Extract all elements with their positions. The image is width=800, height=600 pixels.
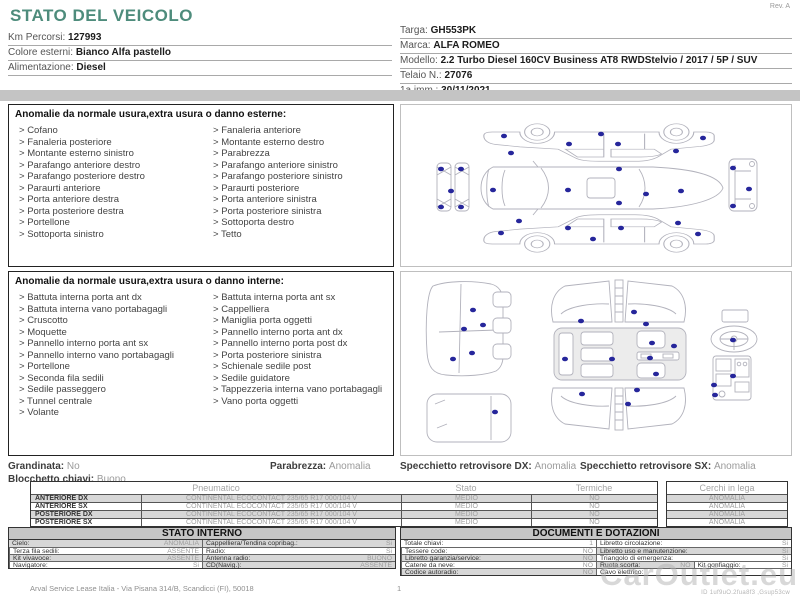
status-cell: Kit vivavoce: ASSENTE <box>9 554 202 561</box>
documents-equipment-title: DOCUMENTI E DOTAZIONI <box>401 528 791 540</box>
tire-termiche: NO <box>531 503 657 510</box>
tire-row: ANTERIORE DX CONTINENTAL ECOCONTACT 235/… <box>31 494 657 502</box>
anomaly-item: Tunnel centrale <box>19 396 189 408</box>
anomaly-item: Sottoporta sinistro <box>19 229 189 241</box>
status-cell: CD(Navig.): ASSENTE <box>202 561 395 568</box>
anomaly-item: Tetto <box>213 229 383 241</box>
document-cell-value: NO <box>583 569 593 576</box>
status-cell-label: Cappelliera/Tendina copribag.: <box>206 540 298 547</box>
status-cell-label: Cielo: <box>12 540 29 547</box>
status-cell-value: ASSENTE <box>360 562 392 569</box>
anomaly-item: Pannello interno vano portabagagli <box>19 350 189 362</box>
anomaly-item: Cofano <box>19 125 189 137</box>
info-row: Marca: ALFA ROMEO <box>400 39 792 54</box>
revision-label: Rev. A <box>770 3 790 10</box>
anomaly-item: Schienale sedile post <box>213 361 383 373</box>
status-cell-value: Si <box>193 562 199 569</box>
tire-description: CONTINENTAL ECOCONTACT 235/65 R17 000/10… <box>141 495 401 502</box>
anomaly-item: Parafango posteriore sinistro <box>213 171 383 183</box>
document-cell: Libretto circolazione: Si <box>596 540 791 547</box>
tire-stato: MEDIO <box>401 511 531 518</box>
anomaly-item: Parabrezza <box>213 148 383 160</box>
page-title: STATO DEL VEICOLO <box>10 6 193 26</box>
alloy-wheels-body: ANOMALIAANOMALIAANOMALIAANOMALIA <box>667 494 787 526</box>
tire-position: ANTERIORE DX <box>31 495 141 502</box>
status-parabrezza: Parabrezza: Anomalia <box>270 461 371 472</box>
status-cell: Cappelliera/Tendina copribag.: Si <box>202 540 395 547</box>
info-value: 27076 <box>444 70 472 81</box>
info-label: Targa: <box>400 25 431 36</box>
status-cell-label: CD(Navig.): <box>206 562 242 569</box>
document-cell: Totale chiavi: 1 <box>401 540 596 547</box>
info-label: Colore esterni: <box>8 47 76 58</box>
exterior-damage-diagram <box>400 104 792 267</box>
status-cell-value: ANOMALIA <box>164 540 199 547</box>
info-label: Km Percorsi: <box>8 32 68 43</box>
anomaly-column: Battuta interna porta ant sxCappellieraM… <box>213 292 383 419</box>
info-value: Diesel <box>76 62 105 73</box>
status-cell: Antenna radio: BUONO <box>202 554 395 561</box>
anomaly-item: Pannello interno porta ant sx <box>19 338 189 350</box>
info-row: Colore esterni: Bianco Alfa pastello <box>8 46 392 61</box>
status-cell: Navigatore: Si <box>9 561 202 568</box>
alloy-wheel-value: ANOMALIA <box>667 502 787 510</box>
interior-status-grid: Cielo: ANOMALIA Cappelliera/Tendina copr… <box>9 540 395 568</box>
info-row: Modello: 2.2 Turbo Diesel 160CV Business… <box>400 54 792 69</box>
status-cell: Cielo: ANOMALIA <box>9 540 202 547</box>
internal-anomalies-panel: Anomalie da normale usura,extra usura o … <box>8 271 394 456</box>
interior-damage-diagram <box>400 271 792 456</box>
dashboard-view <box>711 310 757 400</box>
document-cell: Codice autoradio: NO <box>401 568 596 575</box>
info-row: Alimentazione: Diesel <box>8 61 392 76</box>
anomaly-item: Sottoporta destro <box>213 217 383 229</box>
tire-position: POSTERIORE SX <box>31 519 141 526</box>
info-value: 127993 <box>68 32 101 43</box>
document-cell-label: Libretto circolazione: <box>600 540 662 547</box>
anomaly-item: Paraurti posteriore <box>213 183 383 195</box>
info-row: Telaio N.: 27076 <box>400 69 792 84</box>
anomaly-item: Montante esterno sinistro <box>19 148 189 160</box>
tire-row: ANTERIORE SX CONTINENTAL ECOCONTACT 235/… <box>31 502 657 510</box>
footer-document-id: ID 1uf9uO.2fua8f3 ,Gsup53cw <box>701 590 790 596</box>
anomaly-item: Battuta interna vano portabagagli <box>19 304 189 316</box>
anomaly-item: Montante esterno destro <box>213 137 383 149</box>
anomaly-column: Fanaleria anterioreMontante esterno dest… <box>213 125 383 240</box>
status-cell: Radio: Si <box>202 547 395 554</box>
status-grandinata: Grandinata: No <box>8 461 80 472</box>
alloy-wheel-value: ANOMALIA <box>667 510 787 518</box>
external-anomalies-title: Anomalie da normale usura,extra usura o … <box>9 105 393 123</box>
anomaly-item: Porta posteriore sinistra <box>213 350 383 362</box>
internal-anomalies-title: Anomalie da normale usura,extra usura o … <box>9 272 393 290</box>
column-header-termiche: Termiche <box>531 482 657 494</box>
document-cell: Tessere code: NO <box>401 547 596 554</box>
anomaly-item: Tappezzeria interna vano portabagagli <box>213 384 383 396</box>
document-cell-value: 1 <box>589 540 593 547</box>
anomaly-item: Porta anteriore destra <box>19 194 189 206</box>
status-cell-value: Si <box>386 540 392 547</box>
tire-termiche: NO <box>531 495 657 502</box>
tire-description: CONTINENTAL ECOCONTACT 235/65 R17 000/10… <box>141 519 401 526</box>
anomaly-item: Fanaleria anteriore <box>213 125 383 137</box>
anomaly-item: Sedile guidatore <box>213 373 383 385</box>
anomaly-item: Portellone <box>19 217 189 229</box>
document-cell: Catene da neve: NO <box>401 561 596 568</box>
alloy-wheels-header: Cerchi in lega <box>667 482 787 494</box>
car-plan-view <box>481 161 723 215</box>
anomaly-item: Parafango anteriore sinistro <box>213 160 383 172</box>
tires-table-header: Pneumatico Stato Termiche <box>31 482 657 494</box>
column-header-cerchi: Cerchi in lega <box>667 482 787 494</box>
anomaly-item: Porta posteriore destra <box>19 206 189 218</box>
tire-position: POSTERIORE DX <box>31 511 141 518</box>
info-value: Bianco Alfa pastello <box>76 47 171 58</box>
anomaly-item: Seconda fila sedili <box>19 373 189 385</box>
document-cell: Libretto uso e manutenzione: Si <box>596 547 791 554</box>
tire-description: CONTINENTAL ECOCONTACT 235/65 R17 000/10… <box>141 503 401 510</box>
anomaly-item: Fanaleria posteriore <box>19 137 189 149</box>
internal-anomalies-columns: Battuta interna porta ant dxBattuta inte… <box>9 290 393 419</box>
anomaly-item: Battuta interna porta ant dx <box>19 292 189 304</box>
footer-page-number: 1 <box>397 584 401 593</box>
tires-table-body: ANTERIORE DX CONTINENTAL ECOCONTACT 235/… <box>31 494 657 526</box>
anomaly-item: Parafango posteriore destro <box>19 171 189 183</box>
interior-damage-svg <box>401 272 791 455</box>
vehicle-info-left: Km Percorsi: 127993 Colore esterni: Bian… <box>8 31 392 76</box>
column-header-stato: Stato <box>401 482 531 494</box>
external-anomalies-panel: Anomalie da normale usura,extra usura o … <box>8 104 394 267</box>
vehicle-info-right: Targa: GH553PK Marca: ALFA ROMEO Modello… <box>400 24 792 99</box>
status-specchietto-dx: Specchietto retrovisore DX: Anomalia <box>400 461 576 472</box>
exterior-damage-svg <box>401 105 791 266</box>
caroutlet-watermark: CarOutlet.eu <box>600 557 798 593</box>
info-label: Modello: <box>400 55 441 66</box>
trunk-view <box>427 394 511 442</box>
anomaly-item: Paraurti anteriore <box>19 183 189 195</box>
status-cell-label: Navigatore: <box>13 562 48 569</box>
status-cell: Terza fila sedili: ASSENTE <box>9 547 202 554</box>
tire-stato: MEDIO <box>401 519 531 526</box>
anomaly-item: Volante <box>19 407 189 419</box>
info-label: Telaio N.: <box>400 70 444 81</box>
tire-stato: MEDIO <box>401 503 531 510</box>
tire-description: CONTINENTAL ECOCONTACT 235/65 R17 000/10… <box>141 511 401 518</box>
document-cell-label: Totale chiavi: <box>404 540 443 547</box>
document-cell-label: Codice autoradio: <box>405 569 458 576</box>
interior-status-table: STATO INTERNO Cielo: ANOMALIA Cappellier… <box>8 527 396 569</box>
cabin-floor-plan <box>552 280 687 430</box>
tire-termiche: NO <box>531 511 657 518</box>
anomaly-column: Battuta interna porta ant dxBattuta inte… <box>19 292 189 419</box>
anomaly-item: Pannello interno porta post dx <box>213 338 383 350</box>
footer-address: Arval Service Lease Italia - Via Pisana … <box>30 584 254 593</box>
tire-row: POSTERIORE DX CONTINENTAL ECOCONTACT 235… <box>31 510 657 518</box>
info-row: Km Percorsi: 127993 <box>8 31 392 46</box>
alloy-wheels-table: Cerchi in lega ANOMALIAANOMALIAANOMALIAA… <box>666 481 788 527</box>
info-label: Alimentazione: <box>8 62 76 73</box>
info-value: ALFA ROMEO <box>433 40 499 51</box>
anomaly-item: Maniglia porta oggetti <box>213 315 383 327</box>
anomaly-item: Parafango anteriore destro <box>19 160 189 172</box>
info-value: 2.2 Turbo Diesel 160CV Business AT8 RWDS… <box>441 55 758 66</box>
interior-status-title: STATO INTERNO <box>9 528 395 540</box>
column-header-pneumatico: Pneumatico <box>31 482 401 494</box>
tire-row: POSTERIORE SX CONTINENTAL ECOCONTACT 235… <box>31 518 657 526</box>
exterior-damage-markers <box>438 132 752 242</box>
anomaly-item: Portellone <box>19 361 189 373</box>
tire-stato: MEDIO <box>401 495 531 502</box>
anomaly-item: Porta posteriore sinistra <box>213 206 383 218</box>
rear-seats-view <box>426 282 511 376</box>
tire-position: ANTERIORE SX <box>31 503 141 510</box>
external-anomalies-columns: CofanoFanaleria posterioreMontante ester… <box>9 123 393 240</box>
info-label: Marca: <box>400 40 433 51</box>
anomaly-item: Pannello interno porta ant dx <box>213 327 383 339</box>
anomaly-item: Porta anteriore sinistra <box>213 194 383 206</box>
status-specchietto-sx: Specchietto retrovisore SX: Anomalia <box>580 461 756 472</box>
car-top-side-view <box>484 124 714 161</box>
info-value: GH553PK <box>431 25 477 36</box>
alloy-wheel-value: ANOMALIA <box>667 494 787 502</box>
document-cell: Libretto garanzia/service: NO <box>401 554 596 561</box>
anomaly-item: Vano porta oggetti <box>213 396 383 408</box>
tire-termiche: NO <box>531 519 657 526</box>
anomaly-item: Sedile passeggero <box>19 384 189 396</box>
tires-table: Pneumatico Stato Termiche ANTERIORE DX C… <box>30 481 658 527</box>
gray-divider-band <box>0 90 800 101</box>
anomaly-item: Cappelliera <box>213 304 383 316</box>
anomaly-item: Moquette <box>19 327 189 339</box>
anomaly-item: Battuta interna porta ant sx <box>213 292 383 304</box>
alloy-wheel-value: ANOMALIA <box>667 518 787 526</box>
anomaly-item: Cruscotto <box>19 315 189 327</box>
info-row: Targa: GH553PK <box>400 24 792 39</box>
vehicle-condition-report: Rev. A STATO DEL VEICOLO Km Percorsi: 12… <box>0 0 800 600</box>
anomaly-column: CofanoFanaleria posterioreMontante ester… <box>19 125 189 240</box>
document-cell-value: Si <box>782 540 788 547</box>
